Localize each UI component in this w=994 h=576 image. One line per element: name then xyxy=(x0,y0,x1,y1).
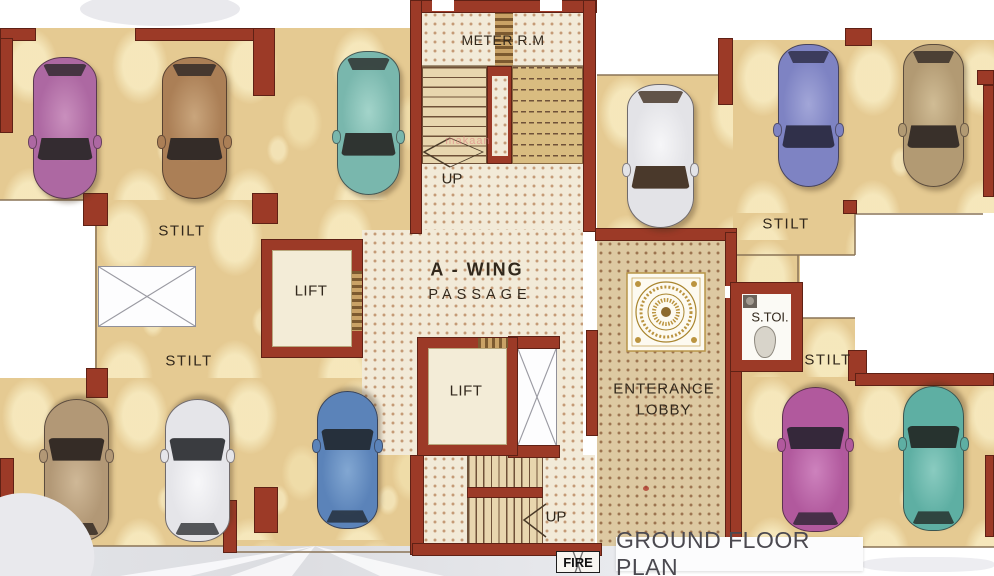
wall-segment xyxy=(254,487,278,533)
lobby-label-line2: LOBBY xyxy=(636,402,691,419)
wall-segment xyxy=(0,38,13,133)
car-mirror-left xyxy=(39,449,48,463)
car-windshield xyxy=(786,427,845,450)
parked-car-white xyxy=(165,399,230,542)
wc-fixture xyxy=(754,326,776,358)
car-rear-window xyxy=(912,511,954,524)
wall-segment xyxy=(253,28,275,96)
car-mirror-left xyxy=(332,130,341,144)
boundary-line xyxy=(597,74,733,76)
up-label-top: UP xyxy=(442,171,463,188)
boundary-line xyxy=(800,317,855,319)
fire-label: FIRE xyxy=(563,555,593,570)
wall-segment xyxy=(985,455,994,537)
car-mirror-left xyxy=(312,439,321,453)
car-windshield xyxy=(169,438,226,461)
duct-shaft xyxy=(517,348,557,446)
car-windshield xyxy=(48,438,105,461)
car-rear-window xyxy=(912,51,954,64)
car-rear-window xyxy=(175,523,220,536)
car-mirror-right xyxy=(845,438,854,452)
stilt-label-mid-left: STILT xyxy=(165,353,212,370)
car-mirror-right xyxy=(226,449,235,463)
wall-opening xyxy=(540,0,562,11)
car-windshield xyxy=(166,138,223,160)
parked-car-blue xyxy=(317,391,378,529)
wall-segment xyxy=(583,0,596,232)
wall-segment xyxy=(252,193,278,224)
parked-car-teal xyxy=(903,386,964,531)
parked-car-periwinkle xyxy=(778,44,839,187)
stair-shaft-floor xyxy=(492,76,508,156)
passage-label: PASSAGE xyxy=(428,287,531,303)
lobby-red-speck xyxy=(643,486,649,491)
wall-segment xyxy=(730,362,742,545)
car-windshield xyxy=(631,166,690,189)
car-mirror-left xyxy=(898,437,907,451)
void-cutout xyxy=(98,266,196,327)
parked-car-magenta xyxy=(782,387,849,532)
car-rear-window xyxy=(326,510,368,522)
boundary-line xyxy=(237,551,412,553)
car-mirror-right xyxy=(960,123,969,137)
parked-car-white xyxy=(627,84,694,228)
parked-car-sand xyxy=(903,44,964,187)
stairs-top-flight xyxy=(422,66,487,164)
car-windshield xyxy=(341,133,396,156)
car-mirror-left xyxy=(773,123,782,137)
fire-label-box: FIRE xyxy=(556,551,600,573)
parked-car-teal xyxy=(337,51,400,195)
boundary-line xyxy=(855,213,983,215)
boundary-line xyxy=(733,254,855,256)
stairs-bottom-flight-lower xyxy=(467,498,543,545)
car-rear-window xyxy=(787,51,829,64)
wall-segment xyxy=(718,38,733,105)
wall-segment xyxy=(843,200,857,214)
wing-label: A - WING xyxy=(430,260,523,281)
car-rear-window xyxy=(792,512,839,525)
wall-segment xyxy=(977,70,994,85)
parked-car-brown xyxy=(162,57,227,199)
car-mirror-right xyxy=(374,439,383,453)
lift-top-label: LIFT xyxy=(295,283,328,300)
car-windshield xyxy=(37,138,93,160)
car-windshield xyxy=(907,125,960,148)
stairs-top-upper-flight-dashed xyxy=(512,66,583,164)
car-mirror-right xyxy=(223,135,232,149)
parked-car-pink xyxy=(33,57,97,199)
car-mirror-left xyxy=(622,163,631,177)
car-windshield xyxy=(907,426,960,449)
plan-title-box: GROUND FLOOR PLAN xyxy=(616,537,863,571)
car-rear-window xyxy=(347,58,391,71)
car-mirror-left xyxy=(898,123,907,137)
wall-segment xyxy=(467,487,543,498)
car-windshield xyxy=(782,125,835,148)
car-mirror-right xyxy=(835,123,844,137)
wall-segment xyxy=(86,368,108,398)
stilt-label-top-left: STILT xyxy=(158,223,205,240)
meter-room-label: METER R.M xyxy=(461,32,544,48)
wall-segment xyxy=(586,330,598,436)
floor-plan: METER R.M STILT STILT STILT STILT LIFT L… xyxy=(0,0,994,576)
stilt-label-bottom-right: STILT xyxy=(804,352,851,369)
wall-segment xyxy=(983,85,994,197)
lift-bottom-door xyxy=(478,338,508,348)
wash-basin xyxy=(743,295,757,308)
car-mirror-left xyxy=(160,449,169,463)
wall-segment xyxy=(410,455,424,555)
lift-top-door xyxy=(352,271,362,331)
car-rear-window xyxy=(43,64,88,77)
car-mirror-right xyxy=(93,135,102,149)
car-rear-window xyxy=(172,64,217,77)
car-rear-window xyxy=(637,91,684,104)
boundary-line xyxy=(95,200,97,378)
car-mirror-right xyxy=(690,163,699,177)
wall-segment xyxy=(595,228,737,241)
boundary-line xyxy=(854,213,856,255)
wall-segment xyxy=(855,373,994,386)
stilt-label-top-right: STILT xyxy=(762,216,809,233)
car-mirror-left xyxy=(28,135,37,149)
toilet-label: S.TOI. xyxy=(751,310,788,325)
car-mirror-left xyxy=(157,135,166,149)
up-label-bottom: UP xyxy=(546,509,567,526)
watermark-text: makaan xyxy=(445,135,490,147)
car-mirror-left xyxy=(777,438,786,452)
lobby-medallion xyxy=(626,272,706,352)
wall-segment xyxy=(845,28,872,46)
boundary-line xyxy=(0,199,96,201)
car-mirror-right xyxy=(960,437,969,451)
wall-segment xyxy=(83,193,108,226)
scan-swoosh-bottom-right xyxy=(862,557,994,572)
wall-opening xyxy=(432,0,454,11)
car-mirror-right xyxy=(105,449,114,463)
car-windshield xyxy=(321,429,374,451)
lift-bottom-label: LIFT xyxy=(450,383,483,400)
lobby-label-line1: ENTERANCE xyxy=(613,381,715,398)
plan-title: GROUND FLOOR PLAN xyxy=(616,527,863,576)
car-mirror-right xyxy=(396,130,405,144)
wall-segment xyxy=(410,0,422,234)
servant-toilet-room xyxy=(731,283,802,371)
